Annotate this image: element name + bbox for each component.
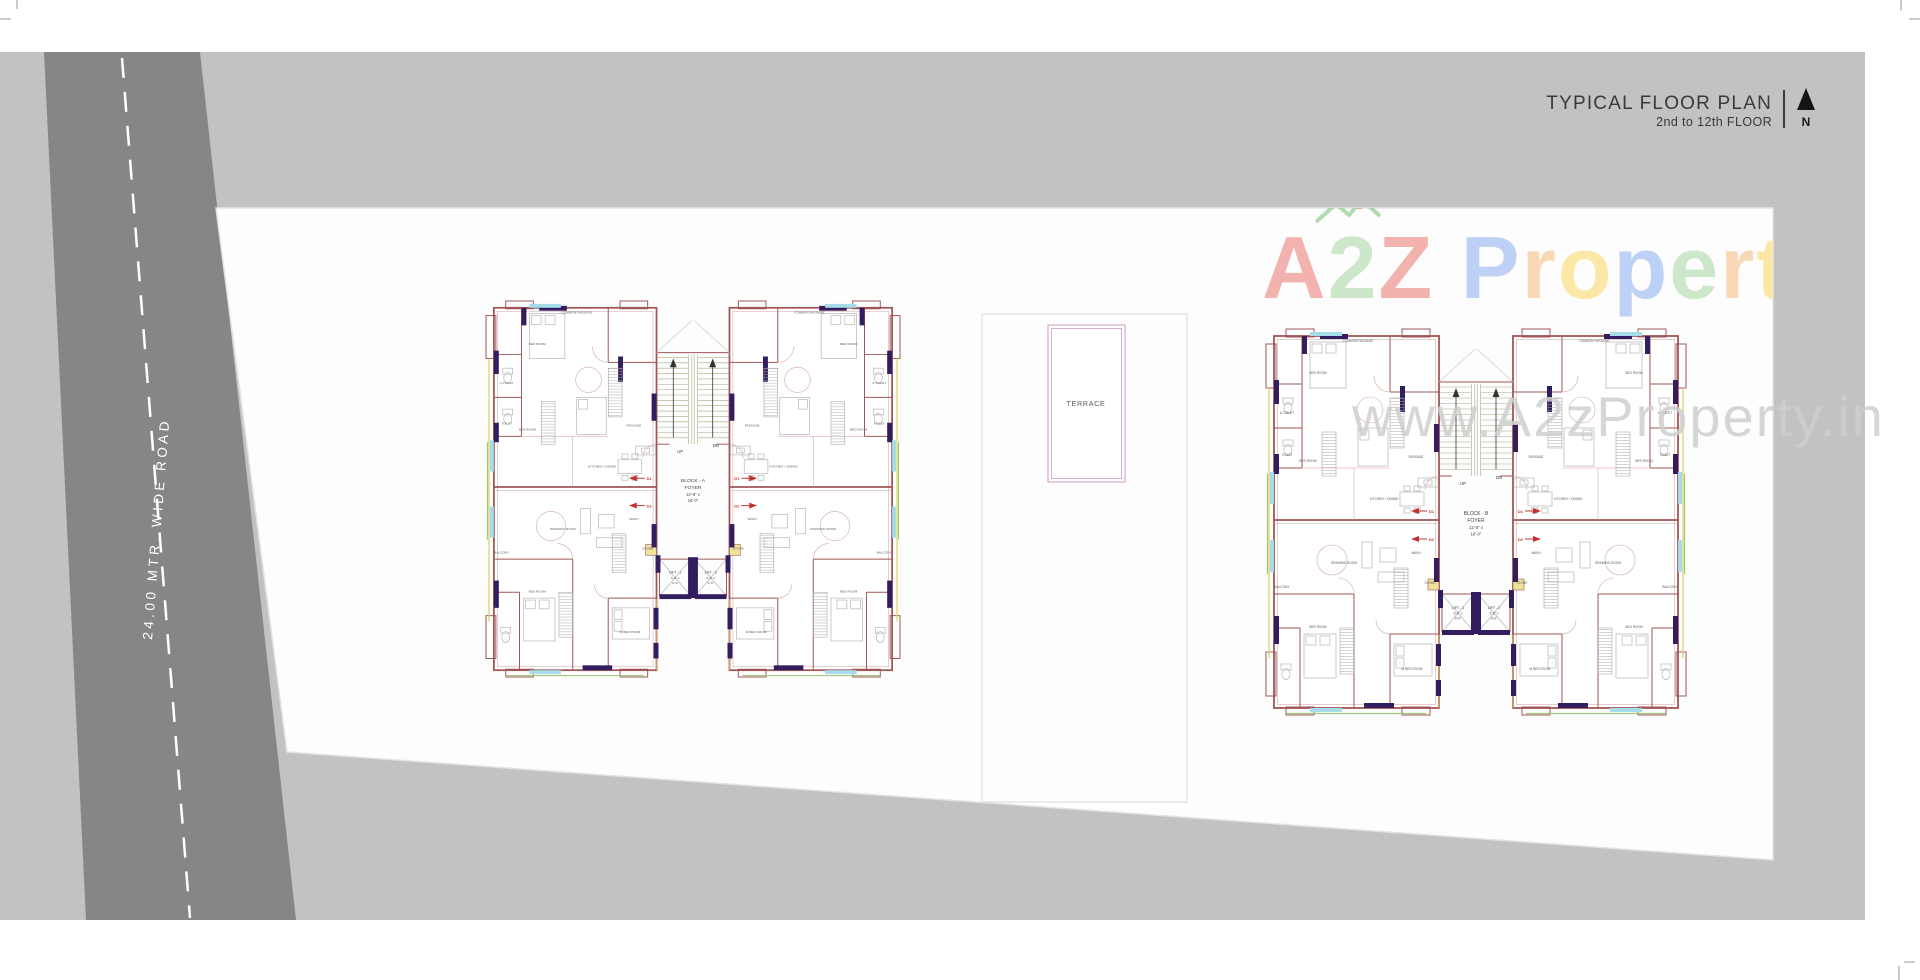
door-tag: D1 bbox=[1429, 509, 1435, 514]
lift-label: LIFT - 2 bbox=[1488, 606, 1501, 610]
room-label: M.BED ROOM bbox=[620, 630, 641, 634]
lift-label: LIFT - 1 bbox=[1452, 606, 1465, 610]
room-label: COMMON PASSAGE bbox=[1343, 339, 1374, 343]
room-label: BALCONY bbox=[1662, 585, 1678, 589]
room-label: BED ROOM bbox=[1309, 625, 1327, 629]
north-label: N bbox=[1802, 115, 1811, 129]
door-tag: D2 bbox=[734, 504, 740, 509]
room-label: BED ROOM bbox=[1635, 459, 1653, 463]
block-foyer: FOYER bbox=[1467, 518, 1485, 524]
block-name: BLOCK - B bbox=[1464, 511, 1489, 517]
door-tag: D2 bbox=[1429, 537, 1435, 542]
room-label: STORE bbox=[733, 546, 744, 550]
room-label: PASSAGE bbox=[626, 424, 641, 428]
block-dim: 12'-8" x bbox=[686, 492, 701, 497]
room-label: M.BED ROOM bbox=[1402, 667, 1423, 671]
room-label: TOILET bbox=[501, 422, 512, 426]
brand-watermark-text: A2Z Property bbox=[1262, 218, 1839, 317]
stair-dn-label: DN bbox=[713, 443, 719, 448]
door-tag: D2 bbox=[647, 504, 653, 509]
block-dim: 16'-0" bbox=[1471, 532, 1482, 537]
room-label: TOILET bbox=[1281, 453, 1292, 457]
lift-size: 6'-6" bbox=[672, 581, 678, 585]
url-watermark: www.A2zProperty.in bbox=[1351, 385, 1885, 448]
room-label: PASSAGE bbox=[745, 424, 760, 428]
room-label: COMMON PASSAGE bbox=[1579, 339, 1610, 343]
block-name: BLOCK - A bbox=[681, 478, 706, 484]
stair-up-label: UP bbox=[677, 449, 683, 454]
stair-dn-label: DN bbox=[1496, 475, 1502, 480]
room-label: PASSAGE bbox=[1529, 455, 1544, 459]
room-label: BALCONY bbox=[1274, 585, 1290, 589]
room-label: BED ROOM bbox=[529, 589, 547, 593]
lift-size: 6'-6" bbox=[708, 581, 714, 585]
brand-watermark: A2Z Property bbox=[1262, 200, 1839, 317]
room-label: TOILET bbox=[874, 422, 885, 426]
room-label: BED ROOM bbox=[529, 342, 547, 346]
door-tag: D1 bbox=[734, 476, 740, 481]
room-label: A.TOILET bbox=[872, 381, 886, 385]
room-label: BED ROOM bbox=[850, 428, 868, 432]
page-title: TYPICAL FLOOR PLAN bbox=[1546, 93, 1772, 114]
room-label: DRAWING ROOM bbox=[550, 527, 576, 531]
room-label: COMMON PASSAGE bbox=[562, 311, 592, 315]
room-label: M.BED ROOM bbox=[1530, 667, 1551, 671]
room-label: BED ROOM bbox=[1309, 371, 1327, 375]
lift-size: 6'-6" x bbox=[1490, 612, 1499, 616]
room-label: DRAWING ROOM bbox=[810, 527, 836, 531]
terrace-label: TERRACE bbox=[1066, 401, 1105, 408]
room-label: BALCONY bbox=[494, 550, 510, 554]
room-label: PASSAGE bbox=[1409, 455, 1424, 459]
lift-label: LIFT - 2 bbox=[705, 571, 717, 575]
lift-size: 6'-6" bbox=[1455, 617, 1461, 621]
room-label: M.BED ROOM bbox=[746, 630, 767, 634]
room-label: WASH bbox=[629, 517, 638, 521]
door-tag: D1 bbox=[647, 476, 653, 481]
room-label: A.TOILET bbox=[500, 381, 514, 385]
room-label: STORE bbox=[1425, 581, 1436, 585]
room-label: BALCONY bbox=[877, 550, 893, 554]
room-label: STORE bbox=[642, 546, 653, 550]
door-tag: D2 bbox=[1518, 537, 1524, 542]
lift-label: LIFT - 1 bbox=[669, 571, 681, 575]
room-label: COMMON PASSAGE bbox=[794, 311, 824, 315]
room-label: BED ROOM bbox=[840, 589, 858, 593]
room-label: BED ROOM bbox=[1625, 371, 1643, 375]
room-label: A.TOILET bbox=[1280, 411, 1294, 415]
floor-plan-drawing: 24.00 MTR. WIDE ROAD A2Z Property TERRAC… bbox=[0, 0, 1920, 980]
lift-size: 6'-6" bbox=[1491, 617, 1497, 621]
block-dim: 16'-0" bbox=[688, 498, 699, 503]
room-label: BED ROOM bbox=[1625, 625, 1643, 629]
room-label: KITCHEN + DINING bbox=[588, 465, 617, 469]
stair-up-label: UP bbox=[1460, 481, 1466, 486]
lift-size: 6'-6" x bbox=[706, 576, 715, 580]
room-label: DRAWING ROOM bbox=[1595, 561, 1621, 565]
room-label: WASH bbox=[1531, 551, 1541, 555]
lift-size: 6'-6" x bbox=[1454, 612, 1463, 616]
block-foyer: FOYER bbox=[685, 485, 702, 491]
lift-size: 6'-6" x bbox=[671, 576, 680, 580]
door-tag: D1 bbox=[1518, 509, 1524, 514]
room-label: BED ROOM bbox=[840, 342, 858, 346]
room-label: WASH bbox=[747, 517, 756, 521]
room-label: BED ROOM bbox=[1299, 459, 1317, 463]
page-subtitle: 2nd to 12th FLOOR bbox=[1656, 115, 1772, 129]
room-label: DRAWING ROOM bbox=[1331, 561, 1357, 565]
room-label: WASH bbox=[1411, 551, 1421, 555]
room-label: STORE bbox=[1517, 581, 1528, 585]
room-label: KITCHEN + DINING bbox=[1554, 497, 1583, 501]
block-dim: 12'-8" x bbox=[1469, 525, 1484, 530]
room-label: BED ROOM bbox=[519, 428, 537, 432]
room-label: KITCHEN + DINING bbox=[769, 465, 798, 469]
room-label: TOILET bbox=[1659, 453, 1670, 457]
floor-plan-page: 24.00 MTR. WIDE ROAD A2Z Property TERRAC… bbox=[0, 0, 1920, 980]
room-label: KITCHEN + DINING bbox=[1370, 497, 1399, 501]
